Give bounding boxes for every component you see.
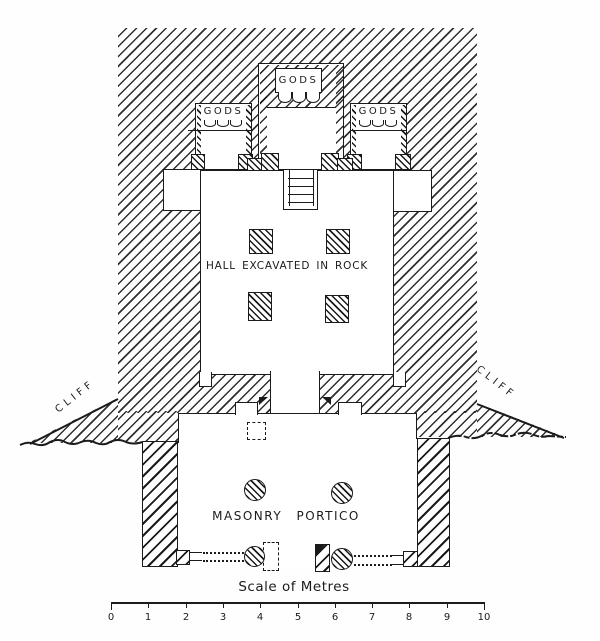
scale-tick (484, 602, 485, 610)
shrine-center-scallop (292, 92, 306, 103)
stairs-rail-left (289, 170, 290, 206)
masonry-wall-left-footing (176, 550, 190, 565)
scale-number-10: 10 (474, 613, 494, 623)
stairs-tread (288, 186, 314, 187)
hall-pillar-se (325, 295, 349, 323)
shrine-center-scallop (278, 92, 292, 103)
scale-number-1: 1 (138, 613, 158, 623)
scale-tick (409, 602, 410, 608)
hall-portico-doorway (270, 371, 320, 415)
shrine-left-tick (188, 130, 196, 131)
hall-pillar-sw (248, 292, 272, 321)
scale-tick (335, 602, 336, 608)
stairs-rail-right (313, 170, 314, 206)
scale-number-8: 8 (399, 613, 419, 623)
shrine-center-wall-right (336, 65, 343, 155)
front-column-right (331, 548, 353, 570)
shrine-center-scallop (306, 92, 320, 103)
scale-tick (298, 602, 299, 608)
stairs-tread (288, 202, 314, 203)
hall-recess-right (393, 372, 406, 387)
portico-corner-left (178, 413, 179, 443)
shrine-left-scallop (217, 120, 229, 127)
masonry-wall-left (142, 441, 178, 567)
scale-number-0: 0 (101, 613, 121, 623)
hall-pillar-ne (326, 229, 350, 254)
hall-pillar-nw (249, 229, 273, 254)
wall-stub-line (189, 560, 202, 561)
shrine-center-chamber (267, 107, 336, 155)
shrine-left-scallop (230, 120, 242, 127)
shrine-right-divider (351, 130, 406, 131)
dotted-pillar-base (247, 422, 266, 440)
gods-label-right: GODS (350, 107, 407, 117)
portico-notch-left (235, 402, 258, 415)
wall-stub-line (392, 555, 404, 556)
masonry-wall-right-footing (403, 551, 418, 567)
shrine-right-scallop (372, 120, 384, 127)
scale-tick (447, 602, 448, 608)
shrine-center-jamb-left-inner (261, 153, 279, 171)
hall-label: HALL EXCAVATED IN ROCK (197, 261, 377, 272)
hall-recess-left (199, 372, 212, 387)
scale-number-4: 4 (250, 613, 270, 623)
front-column-left (244, 546, 265, 567)
shrine-right-jamb-right (395, 154, 411, 170)
scale-title: Scale of Metres (194, 581, 394, 595)
dotted-foundation-right-lower (354, 564, 392, 566)
scale-number-9: 9 (437, 613, 457, 623)
scale-tick (186, 602, 187, 608)
dotted-foundation-left-upper (203, 552, 244, 554)
scale-tick (111, 602, 112, 610)
wall-stub-line (189, 552, 202, 553)
stairs-tread (288, 194, 314, 195)
portico-column-right (331, 482, 353, 504)
portico-interior (178, 413, 417, 567)
gods-label-center: GODS (275, 76, 322, 86)
hall-alcove-left (163, 169, 201, 211)
dotted-column-base (263, 542, 279, 571)
shrine-center-wall-left (260, 65, 267, 155)
temple-plan-drawing: GODS GODS GODS HALL EXCAVATED IN ROCK (0, 0, 600, 641)
dotted-foundation-right-upper (354, 555, 392, 557)
shrine-right-scallop (359, 120, 371, 127)
shrine-left-jamb-left (191, 154, 205, 170)
wall-stub-line (392, 564, 404, 565)
portico-column-left (244, 479, 266, 501)
scale-tick (260, 602, 261, 608)
shrine-left-divider (196, 130, 251, 131)
shrine-right-scallop (385, 120, 397, 127)
portico-notch-right (338, 402, 362, 415)
scale-number-7: 7 (362, 613, 382, 623)
gods-label-left: GODS (195, 107, 252, 117)
masonry-wall-right (417, 438, 450, 567)
scale-number-3: 3 (213, 613, 233, 623)
dotted-foundation-left-lower (203, 560, 244, 562)
portico-corner-right (416, 413, 417, 439)
scale-tick (148, 602, 149, 608)
scale-number-2: 2 (176, 613, 196, 623)
stairs-tread (288, 178, 314, 179)
scale-number-5: 5 (288, 613, 308, 623)
scale-tick (223, 602, 224, 608)
portico-label: MASONRY PORTICO (186, 510, 386, 522)
hall-alcove-right (393, 170, 432, 212)
shrine-left-scallop (204, 120, 216, 127)
scale-number-6: 6 (325, 613, 345, 623)
scale-tick (372, 602, 373, 608)
